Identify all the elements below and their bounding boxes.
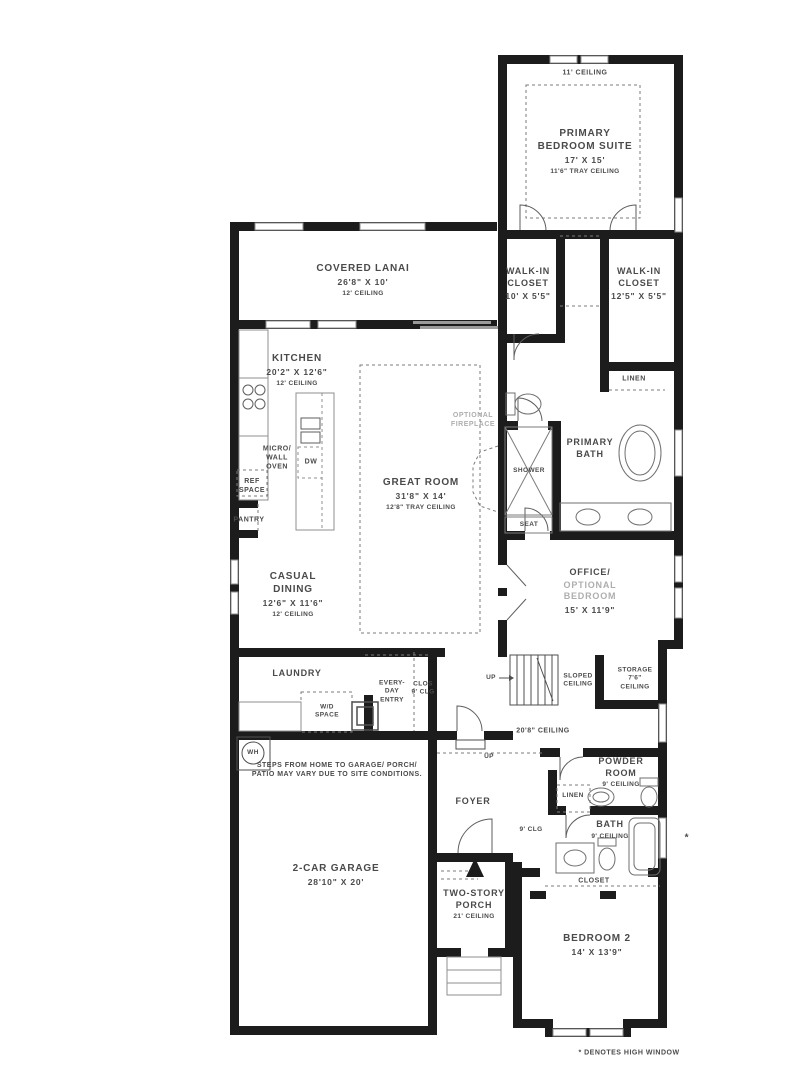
water-heater-label: WH bbox=[247, 749, 259, 757]
covered-lanai-label: COVERED LANAI 26'8" X 10' 12' CEILING bbox=[316, 262, 409, 298]
vanity-sinks-primary bbox=[560, 503, 671, 531]
laundry-counter bbox=[239, 702, 301, 731]
ref-space-label: REF SPACE bbox=[239, 477, 265, 495]
wd-space-label: W/D SPACE bbox=[315, 704, 339, 721]
primary-suite-label: PRIMARY BEDROOM SUITE 17' X 15' 11'6" TR… bbox=[538, 127, 633, 176]
walk-in-closet-2-label: WALK-IN CLOSET 12'5" X 5'5" bbox=[611, 266, 667, 302]
entry-closet-label: CLOS 9' CLG bbox=[411, 681, 434, 698]
hall-9clg-label: 9' CLG bbox=[519, 826, 542, 834]
floor-plan-linework bbox=[0, 0, 800, 1067]
garage-step-icon bbox=[456, 740, 485, 749]
closet-bedroom2-label: CLOSET bbox=[578, 876, 609, 885]
everyday-entry-label: EVERY- DAY ENTRY bbox=[379, 679, 405, 704]
bath-2-label: BATH 9' CEILING bbox=[591, 819, 628, 841]
garage-label: 2-CAR GARAGE 28'10" X 20' bbox=[293, 862, 380, 888]
casual-dining-label: CASUAL DINING 12'6" X 11'6" 12' CEILING bbox=[263, 570, 324, 619]
primary-bath-label: PRIMARY BATH bbox=[567, 437, 614, 460]
micro-wall-oven-label: MICRO/ WALL OVEN bbox=[263, 444, 291, 471]
seat-label: SEAT bbox=[520, 521, 538, 529]
bathtub-icon-primary bbox=[619, 425, 661, 481]
linen-1-label: LINEN bbox=[622, 374, 646, 383]
hall-ceiling-label: 20'8" CEILING bbox=[516, 726, 570, 735]
linen-2-label: LINEN bbox=[562, 792, 584, 800]
office-label: OFFICE/ OPTIONAL BEDROOM 15' X 11'9" bbox=[564, 567, 617, 616]
garage-up-label: UP bbox=[484, 753, 494, 761]
floor-plan: 11' CEILING PRIMARY BEDROOM SUITE 17' X … bbox=[0, 0, 800, 1067]
powder-room-label: POWDER ROOM 9' CEILING bbox=[598, 756, 643, 790]
kitchen-counter bbox=[239, 330, 268, 500]
walk-in-closet-1-label: WALK-IN CLOSET 10' X 5'5" bbox=[505, 266, 550, 302]
optional-fireplace-label: OPTIONAL FIREPLACE bbox=[451, 411, 495, 429]
stairs-up-label: UP bbox=[486, 674, 496, 682]
storage-label: STORAGE 7'6" CEILING bbox=[618, 666, 653, 691]
toilet-icon-primary bbox=[506, 393, 541, 415]
dishwasher-label: DW bbox=[305, 457, 318, 466]
two-story-porch-label: TWO-STORY PORCH 21' CEILING bbox=[443, 888, 505, 922]
laundry-label: LAUNDRY bbox=[272, 668, 321, 680]
shower-label: SHOWER bbox=[513, 467, 545, 475]
stairs-icon bbox=[499, 655, 558, 705]
cooktop-icon bbox=[243, 385, 265, 409]
sloped-ceiling-label: SLOPED CEILING bbox=[563, 673, 592, 690]
kitchen-label: KITCHEN 20'2" X 12'6" 12' CEILING bbox=[266, 352, 327, 388]
porch-steps-icon bbox=[447, 957, 501, 995]
pantry-label: PANTRY bbox=[234, 515, 265, 524]
bedroom-2-label: BEDROOM 2 14' X 13'9" bbox=[563, 932, 631, 958]
foyer-label: FOYER bbox=[455, 796, 490, 808]
high-window-marker: * bbox=[685, 832, 690, 845]
high-window-footnote: * DENOTES HIGH WINDOW bbox=[578, 1048, 679, 1057]
shower-icon bbox=[505, 427, 552, 533]
garage-note: STEPS FROM HOME TO GARAGE/ PORCH/ PATIO … bbox=[252, 761, 422, 779]
great-room-label: GREAT ROOM 31'8" X 14' 12'8" TRAY CEILIN… bbox=[383, 476, 459, 512]
primary-suite-ceiling-label: 11' CEILING bbox=[563, 68, 608, 77]
